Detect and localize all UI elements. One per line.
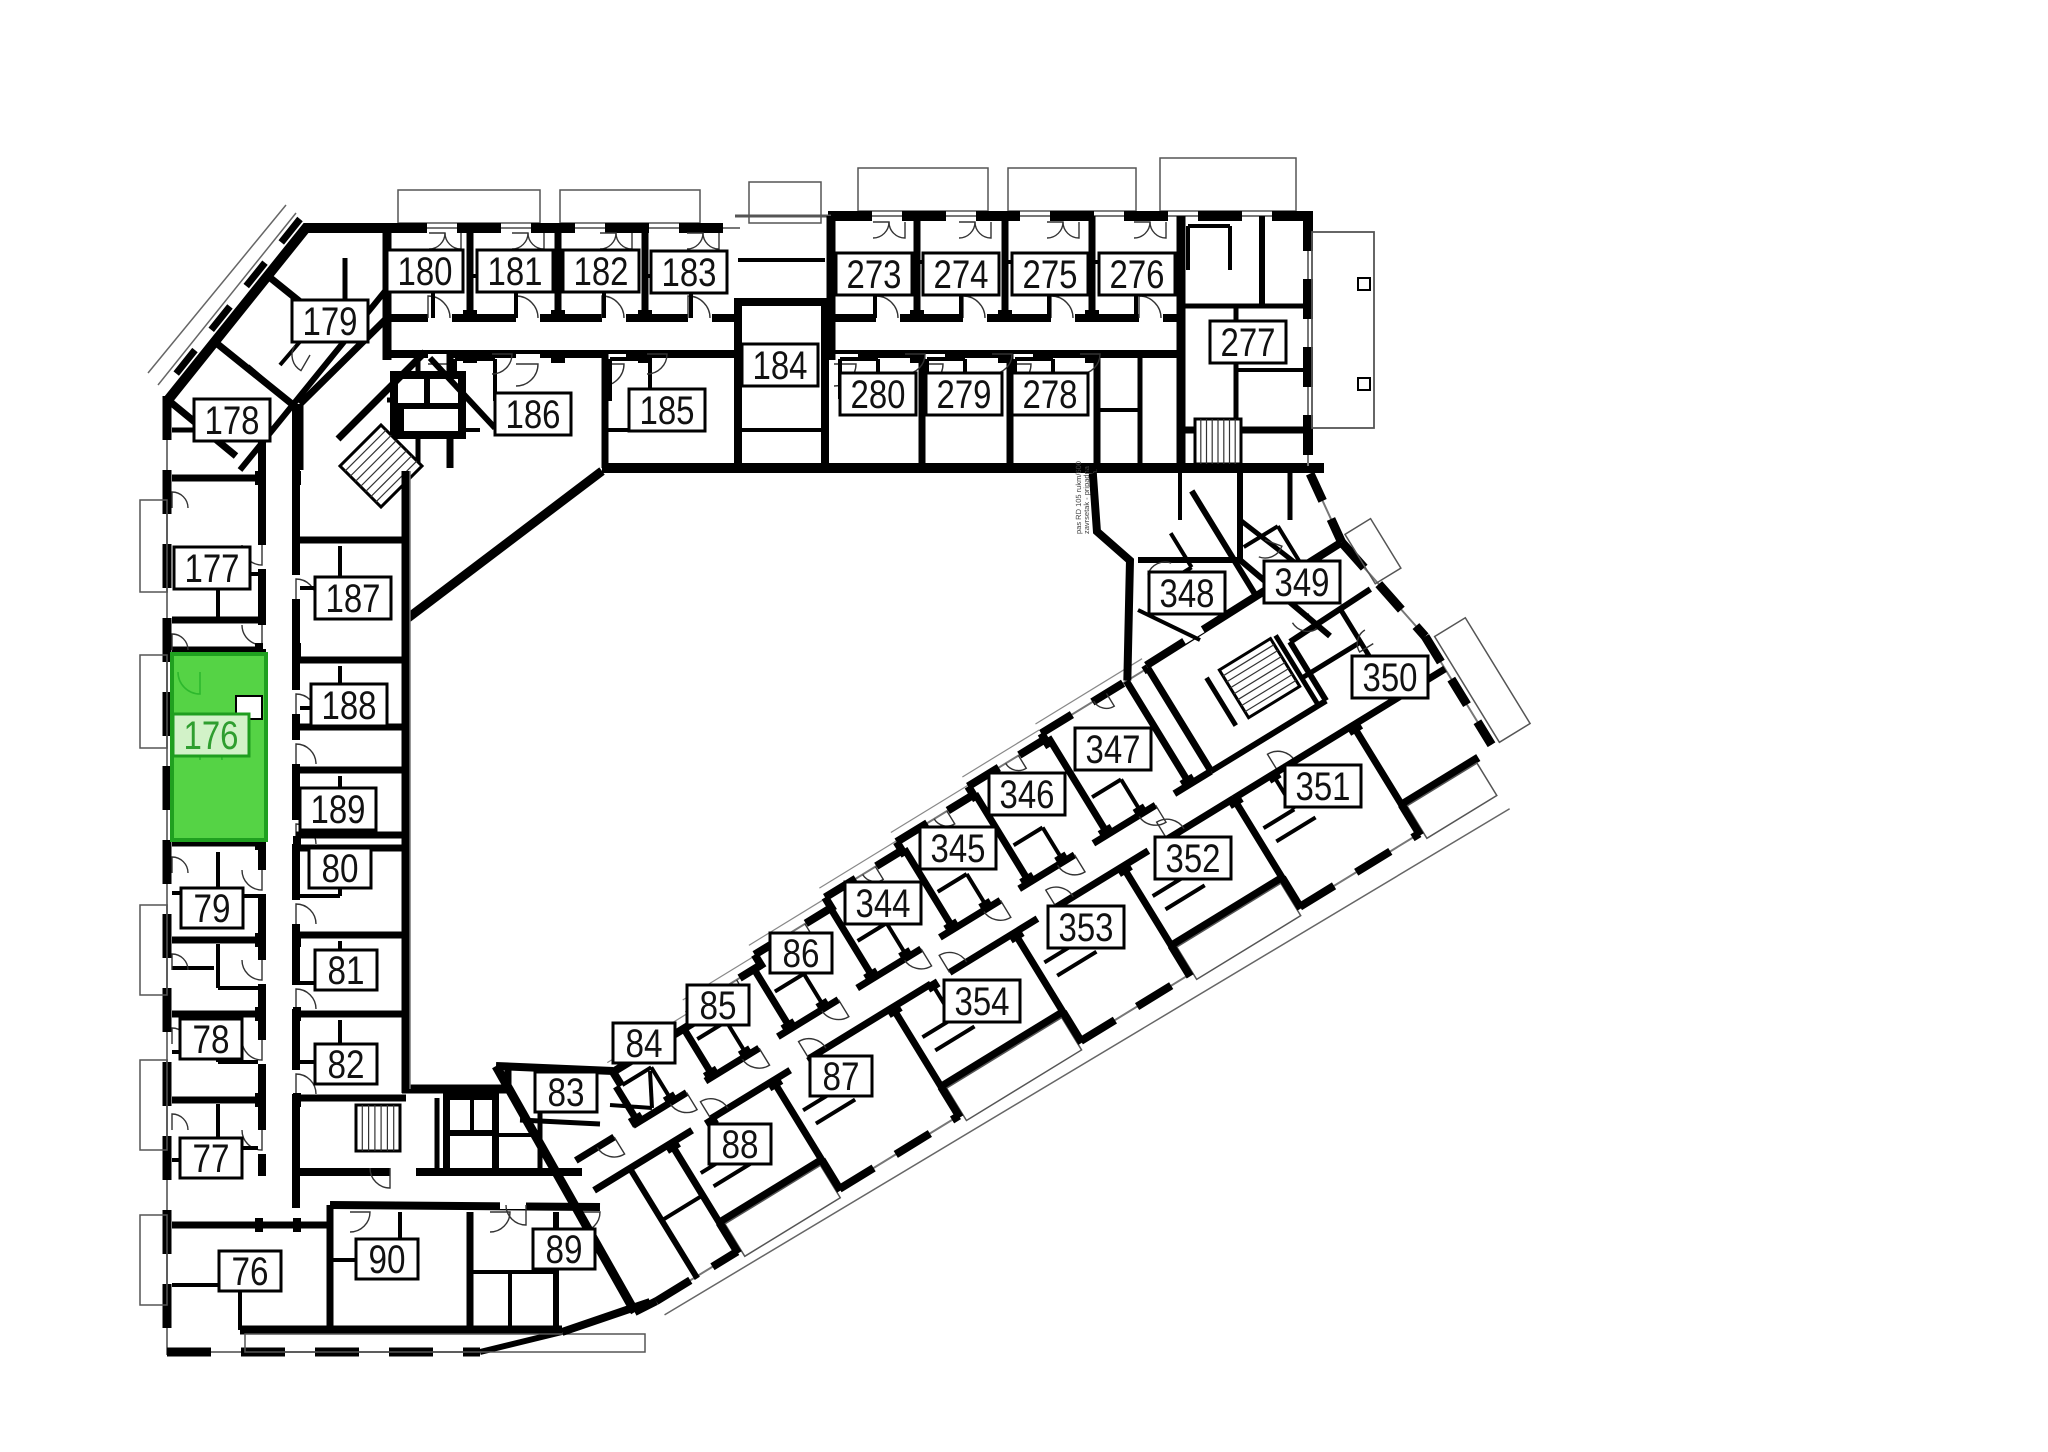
svg-text:278: 278	[1023, 373, 1078, 417]
svg-text:82: 82	[328, 1043, 365, 1087]
svg-text:87: 87	[823, 1055, 860, 1099]
svg-text:76: 76	[232, 1250, 269, 1294]
svg-text:176: 176	[184, 714, 239, 758]
svg-text:90: 90	[369, 1238, 406, 1282]
svg-text:347: 347	[1086, 728, 1141, 772]
svg-text:354: 354	[955, 980, 1010, 1024]
svg-text:351: 351	[1296, 765, 1351, 809]
svg-text:86: 86	[783, 932, 820, 976]
svg-text:346: 346	[1000, 773, 1055, 817]
svg-text:81: 81	[328, 949, 365, 993]
svg-text:349: 349	[1275, 561, 1330, 605]
svg-text:352: 352	[1166, 837, 1221, 881]
svg-text:84: 84	[626, 1022, 663, 1066]
svg-text:78: 78	[193, 1018, 230, 1062]
svg-text:348: 348	[1160, 572, 1215, 616]
svg-text:189: 189	[311, 788, 366, 832]
svg-text:80: 80	[322, 847, 359, 891]
svg-text:186: 186	[506, 393, 561, 437]
svg-text:350: 350	[1363, 656, 1418, 700]
svg-text:85: 85	[700, 984, 737, 1028]
svg-text:79: 79	[194, 887, 231, 931]
svg-text:83: 83	[548, 1071, 585, 1115]
svg-text:177: 177	[185, 547, 240, 591]
svg-text:275: 275	[1023, 253, 1078, 297]
svg-text:185: 185	[640, 389, 695, 433]
svg-text:279: 279	[937, 373, 992, 417]
svg-text:187: 187	[326, 577, 381, 621]
svg-text:277: 277	[1221, 321, 1276, 365]
svg-text:344: 344	[856, 882, 911, 926]
svg-text:88: 88	[722, 1123, 759, 1167]
svg-text:280: 280	[851, 373, 906, 417]
svg-text:178: 178	[205, 399, 260, 443]
svg-text:188: 188	[322, 684, 377, 728]
svg-text:77: 77	[193, 1137, 230, 1181]
svg-text:276: 276	[1110, 253, 1165, 297]
svg-text:179: 179	[303, 300, 358, 344]
svg-text:184: 184	[753, 344, 808, 388]
svg-text:89: 89	[546, 1228, 583, 1272]
svg-text:181: 181	[488, 250, 543, 294]
svg-text:180: 180	[398, 250, 453, 294]
svg-text:273: 273	[847, 253, 902, 297]
svg-text:183: 183	[662, 251, 717, 295]
svg-text:274: 274	[934, 253, 989, 297]
svg-text:182: 182	[574, 250, 629, 294]
svg-text:345: 345	[931, 827, 986, 871]
svg-text:353: 353	[1059, 906, 1114, 950]
